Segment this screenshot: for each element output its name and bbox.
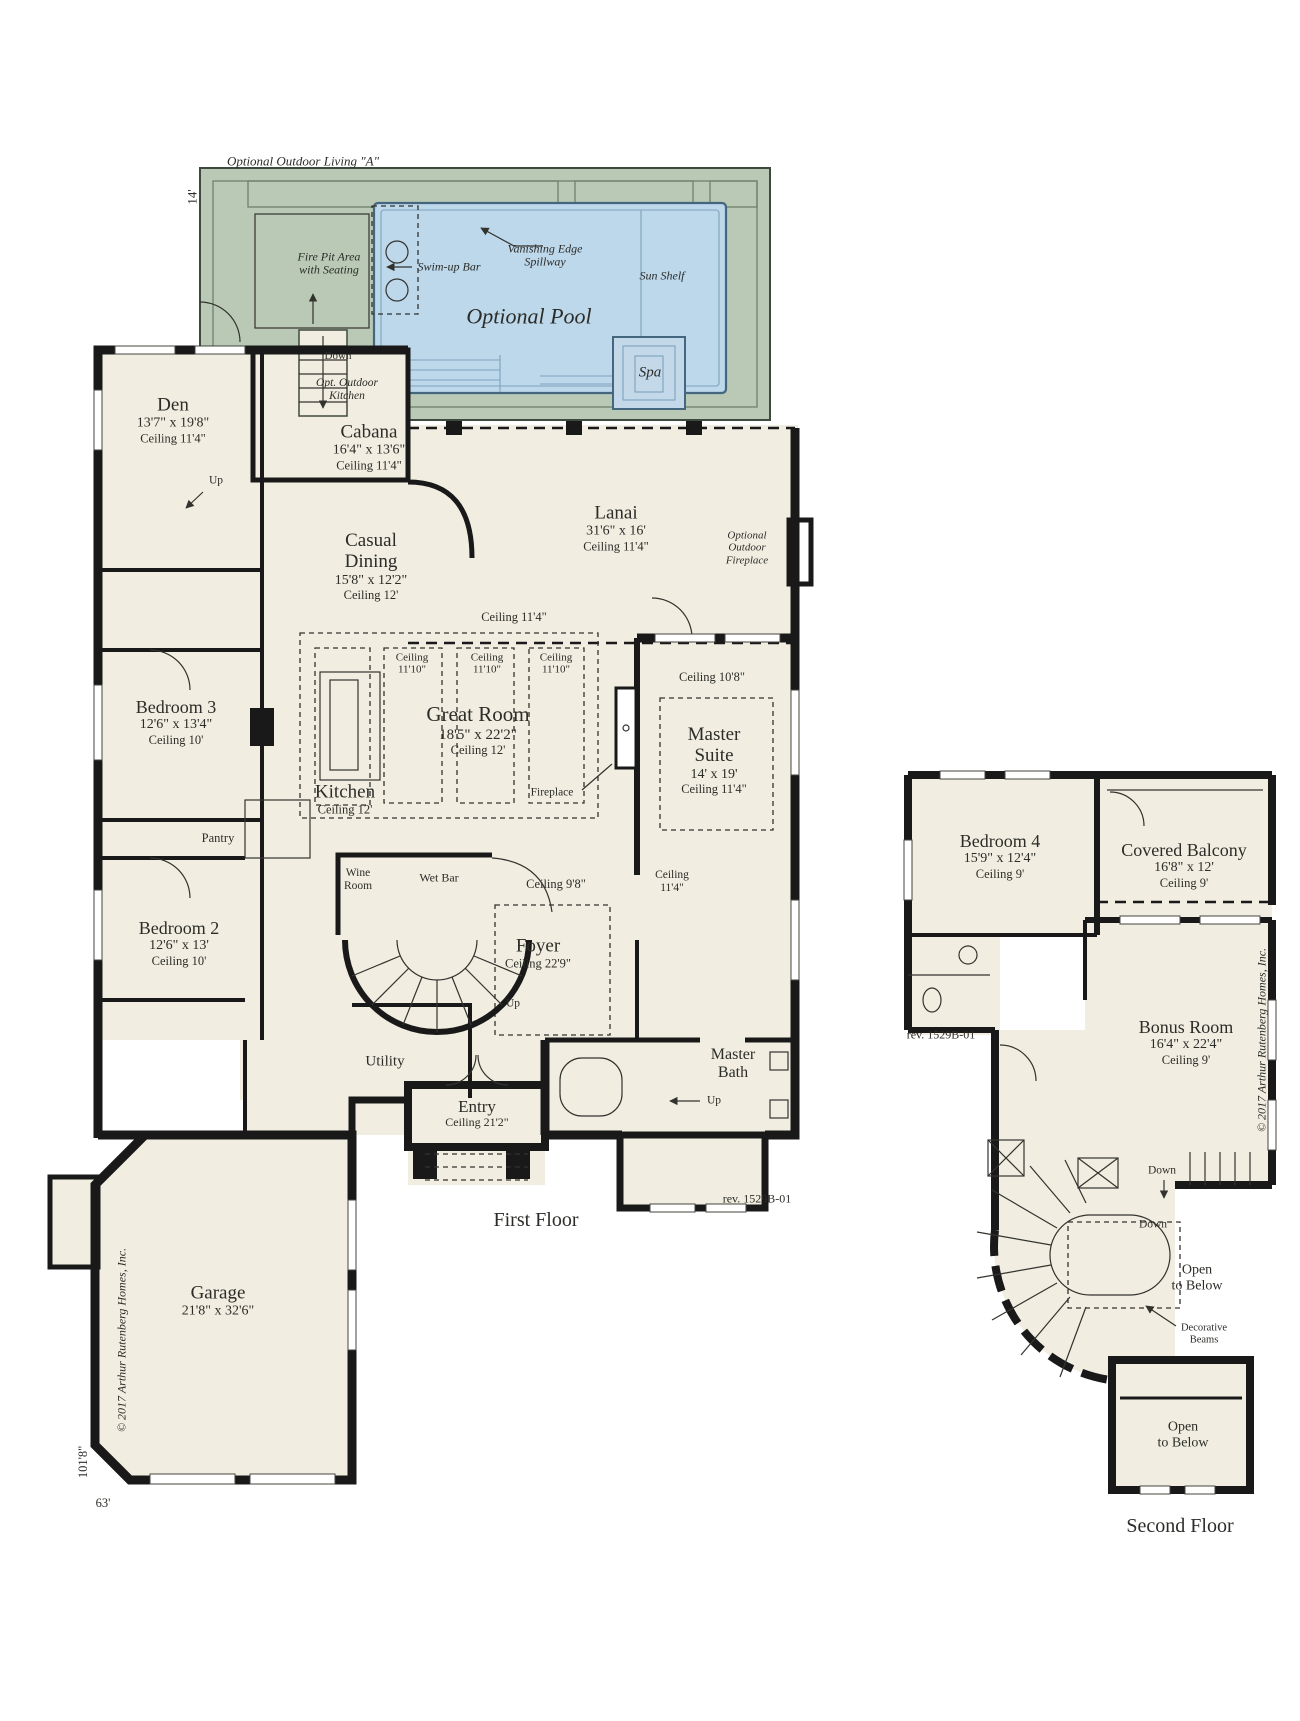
spa xyxy=(613,337,685,409)
deck-stairs xyxy=(299,330,347,416)
range xyxy=(250,708,274,746)
floor-plan-drawing xyxy=(0,0,1300,1721)
second-floor-plan xyxy=(904,771,1276,1494)
first-floor-plan xyxy=(50,330,811,1484)
floor-plan-sheet: Optional Outdoor Living "A"14'Fire Pit A… xyxy=(0,0,1300,1721)
